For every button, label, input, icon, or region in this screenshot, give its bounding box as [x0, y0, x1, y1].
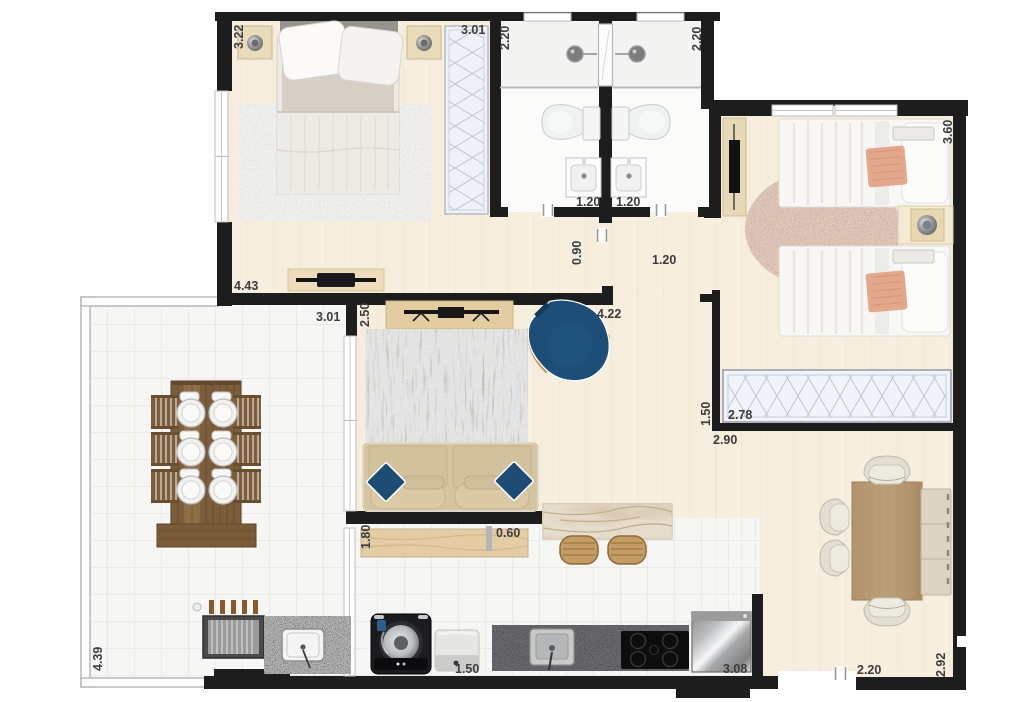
svg-text:2.20: 2.20 — [857, 663, 881, 677]
svg-text:2.20: 2.20 — [498, 26, 512, 50]
svg-text:2.50: 2.50 — [358, 303, 372, 327]
svg-text:3.01: 3.01 — [316, 310, 340, 324]
svg-text:1.20: 1.20 — [652, 253, 676, 267]
svg-text:1.80: 1.80 — [359, 525, 373, 549]
svg-text:4.22: 4.22 — [597, 307, 621, 321]
svg-text:3.22: 3.22 — [232, 25, 246, 49]
svg-text:1.50: 1.50 — [455, 662, 479, 676]
svg-text:4.39: 4.39 — [91, 647, 105, 671]
svg-text:2.78: 2.78 — [728, 408, 752, 422]
svg-text:3.01: 3.01 — [461, 23, 485, 37]
svg-text:3.08: 3.08 — [723, 662, 747, 676]
svg-text:1.20: 1.20 — [576, 195, 600, 209]
svg-text:1.50: 1.50 — [699, 402, 713, 426]
svg-text:0.90: 0.90 — [570, 241, 584, 265]
svg-text:1.20: 1.20 — [616, 195, 640, 209]
svg-text:2.90: 2.90 — [713, 433, 737, 447]
svg-text:3.60: 3.60 — [941, 120, 955, 144]
svg-text:0.60: 0.60 — [496, 526, 520, 540]
svg-text:2.20: 2.20 — [690, 27, 704, 51]
svg-text:2.92: 2.92 — [934, 653, 948, 677]
svg-text:4.43: 4.43 — [234, 279, 258, 293]
